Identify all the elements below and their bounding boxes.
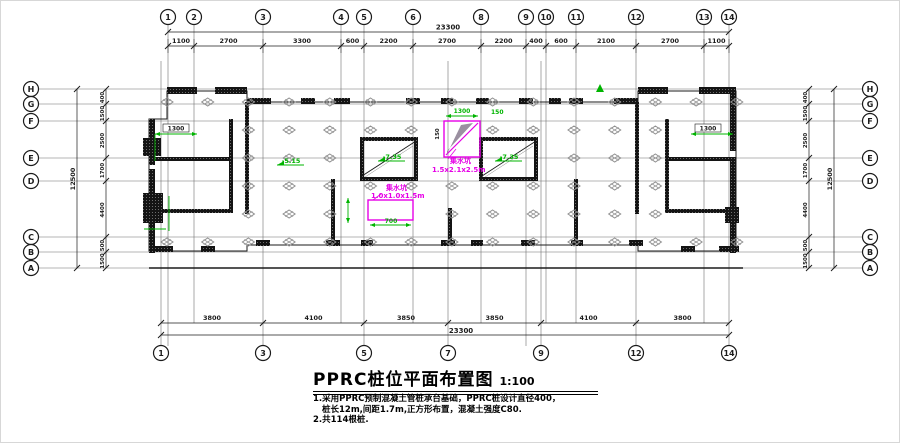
dim-label-right: 1500 [803, 106, 809, 121]
pile-cross [529, 183, 537, 188]
axis-bubble-left-G-label: G [28, 100, 35, 109]
pile-cross [407, 127, 415, 132]
pile-icon [649, 238, 661, 246]
axis-bubble-top-11-label: 11 [570, 13, 582, 22]
wall-segment [665, 119, 669, 213]
drawing-title: PPRC桩位平面布置图 [313, 370, 494, 390]
axis-bubble-right-C-label: C [867, 233, 873, 242]
pile-icon [283, 126, 295, 134]
note-line: 1.采用PPRC预制混凝土管桩承台基础，PPRC桩设计直径400， [313, 394, 560, 405]
axis-bubble-top-1-label: 1 [165, 13, 171, 22]
pile-cross [448, 183, 456, 188]
dim-label-right: 1700 [803, 163, 809, 178]
wall-segment [256, 240, 270, 246]
dim-label-left: 4400 [100, 202, 106, 217]
dim-label-top: 2200 [494, 37, 513, 45]
axis-bubble-right-G-label: G [867, 100, 874, 109]
pile-cross [489, 211, 497, 216]
pile-icon [527, 182, 539, 190]
pile-icon [365, 182, 377, 190]
axis-bubble-bottom-5-label: 5 [361, 349, 367, 358]
dim-label-top: 1100 [707, 37, 726, 45]
axis-bubble-top-8-label: 8 [478, 13, 484, 22]
pit-dim-label: 700 [385, 218, 398, 225]
axis-bubble-bottom-3-label: 3 [260, 349, 266, 358]
pile-cross [651, 211, 659, 216]
pile-cross [285, 127, 293, 132]
stair-diagonal [365, 146, 413, 177]
axis-bubble-left-B-label: B [28, 248, 34, 257]
axis-bubble-right-E-label: E [867, 154, 872, 163]
pile-cross [529, 211, 537, 216]
dim-label-bottom: 3800 [203, 314, 222, 322]
dim-label-right: 1500 [803, 253, 809, 268]
elevation-label: -7.35 [383, 153, 402, 161]
axis-bubble-top-4-label: 4 [338, 13, 344, 22]
axis-bubble-left-D-label: D [28, 177, 35, 186]
dim-label-bottom: 4100 [304, 314, 323, 322]
pile-cross [651, 239, 659, 244]
pile-icon [649, 98, 661, 106]
wall-segment [143, 138, 161, 156]
core-dim-label: 1300 [168, 126, 185, 133]
axis-bubble-bottom-7-label: 7 [445, 349, 451, 358]
pile-icon [202, 238, 214, 246]
wall-segment [665, 157, 736, 161]
axis-bubble-bottom-1-label: 1 [158, 349, 164, 358]
pile-icon [405, 182, 417, 190]
pile-icon [527, 210, 539, 218]
dim-label-top: 600 [554, 37, 568, 45]
dim-label-left: 500 [100, 240, 106, 252]
pile-cross [204, 239, 212, 244]
dim-label-top: 2700 [219, 37, 238, 45]
dim-label-top: 1100 [172, 37, 191, 45]
dim-label-bottom: 3800 [673, 314, 692, 322]
dim-label-top: 2200 [379, 37, 398, 45]
wall-segment [215, 87, 247, 94]
pile-icon [487, 126, 499, 134]
pit-dim-label: 150 [435, 128, 441, 140]
sump-pit-size: 1.5x2.1x2.5m [432, 166, 486, 174]
wall-segment [534, 137, 538, 181]
dim-label-left: 400 [100, 92, 106, 104]
sump-pit-outline [368, 200, 413, 220]
dim-label-right: 2500 [803, 133, 809, 148]
sump-pit-label: 集水坑 [385, 183, 407, 192]
wall-segment [681, 246, 695, 252]
pile-icon [283, 210, 295, 218]
axis-bubble-right-H-label: H [867, 85, 874, 94]
wall-segment [151, 246, 173, 252]
pile-icon [487, 210, 499, 218]
wall-segment [360, 177, 418, 181]
axis-bubble-left-C-label: C [28, 233, 34, 242]
pile-cross [651, 127, 659, 132]
wall-segment [479, 137, 538, 141]
dim-label-right: 400 [803, 92, 809, 104]
pile-icon [161, 238, 173, 246]
pile-icon [446, 182, 458, 190]
dim-label-right: 4400 [803, 202, 809, 217]
pile-icon [690, 238, 702, 246]
axis-bubble-bottom-14-label: 14 [723, 349, 735, 358]
axis-bubble-top-12-label: 12 [630, 13, 641, 22]
pile-cross [489, 127, 497, 132]
pile-cross [285, 183, 293, 188]
axis-bubble-right-B-label: B [867, 248, 873, 257]
axis-bubble-bottom-12-label: 12 [630, 349, 641, 358]
dim-label-left: 1700 [100, 163, 106, 178]
axis-bubble-top-10-label: 10 [540, 13, 552, 22]
dim-label-top: 2100 [597, 37, 616, 45]
axis-bubble-top-3-label: 3 [260, 13, 266, 22]
wall-segment [360, 137, 418, 141]
pile-icon [609, 210, 621, 218]
wall-segment [638, 87, 668, 94]
cad-drawing-canvas: 1100270033006002200270022004006002100270… [0, 0, 900, 443]
wall-segment [229, 119, 233, 213]
pile-cross [611, 183, 619, 188]
wall-segment [479, 177, 538, 181]
dim-label-left-total: 12500 [69, 167, 77, 190]
axis-bubble-top-6-label: 6 [410, 13, 416, 22]
pile-icon [405, 126, 417, 134]
dim-label-bottom-total: 23300 [449, 327, 473, 335]
dim-label-top: 600 [346, 37, 360, 45]
pile-icon [365, 126, 377, 134]
sump-pit-label: 集水坑 [449, 156, 471, 165]
wall-segment [549, 98, 561, 104]
axis-bubble-left-H-label: H [28, 85, 35, 94]
dim-label-right: 500 [803, 240, 809, 252]
wall-segment [334, 98, 350, 104]
pile-cross [489, 239, 497, 244]
dim-label-bottom: 4100 [579, 314, 598, 322]
pile-cross [489, 183, 497, 188]
pile-cross [367, 183, 375, 188]
wall-segment [153, 157, 231, 161]
pile-cross [163, 239, 171, 244]
pile-cross [611, 211, 619, 216]
axis-bubble-top-5-label: 5 [361, 13, 367, 22]
axis-bubble-bottom-9-label: 9 [538, 349, 544, 358]
dim-label-bottom: 3850 [485, 314, 504, 322]
dim-label-top: 2700 [661, 37, 680, 45]
wall-segment [143, 193, 163, 223]
pile-icon [568, 126, 580, 134]
pile-icon [649, 126, 661, 134]
wall-segment [629, 240, 643, 246]
axis-bubble-right-F-label: F [867, 117, 872, 126]
axis-bubble-top-14-label: 14 [723, 13, 735, 22]
pile-icon [283, 182, 295, 190]
elevation-label: -5.15 [282, 157, 301, 165]
pile-cross [529, 127, 537, 132]
note-line: 2.共114根桩. [313, 415, 560, 426]
pile-cross [611, 127, 619, 132]
pile-icon [649, 182, 661, 190]
wall-segment [725, 207, 739, 223]
dim-label-bottom: 3850 [397, 314, 416, 322]
wall-segment [730, 161, 736, 211]
wall-segment [167, 87, 197, 94]
pile-cross [367, 127, 375, 132]
wall-segment [360, 137, 364, 181]
pit-dim-label: 1300 [454, 108, 471, 115]
pile-cross [570, 127, 578, 132]
wall-segment [635, 102, 639, 214]
drawing-notes: 1.采用PPRC预制混凝土管桩承台基础，PPRC桩设计直径400， 桩长12m,… [313, 394, 560, 426]
wall-segment [201, 246, 215, 252]
pile-icon [690, 98, 702, 106]
pile-icon [649, 210, 661, 218]
pile-icon [202, 98, 214, 106]
core-dim-label: 1300 [700, 126, 717, 133]
pit-dim-label: 150 [491, 109, 504, 116]
dim-label-top-total: 23300 [436, 24, 460, 32]
wall-segment [719, 246, 739, 252]
note-line: 桩长12m,间距1.7m,正方形布置，混凝土强度C80. [313, 405, 560, 416]
elevation-label: -7.35 [500, 153, 519, 161]
dim-label-top: 2700 [438, 37, 457, 45]
drawing-title-block: PPRC桩位平面布置图1:100 [313, 365, 598, 395]
dim-label-left: 2500 [100, 133, 106, 148]
pile-icon [609, 126, 621, 134]
pile-icon [609, 182, 621, 190]
sump-pit-size: 1.0x1.0x1.5m [371, 192, 425, 200]
pile-icon [487, 182, 499, 190]
pile-cross [407, 183, 415, 188]
axis-bubble-top-13-label: 13 [698, 13, 709, 22]
wall-segment [471, 240, 483, 246]
pile-cross [285, 211, 293, 216]
pile-cross [326, 127, 334, 132]
pile-cross [651, 183, 659, 188]
axis-bubble-right-D-label: D [867, 177, 874, 186]
axis-bubble-left-E-label: E [28, 154, 33, 163]
drawing-scale-label: 1:100 [500, 375, 535, 388]
dim-label-top: 3300 [293, 37, 312, 45]
axis-bubble-left-F-label: F [28, 117, 33, 126]
dim-label-top: 400 [529, 37, 543, 45]
wall-segment [301, 98, 315, 104]
wall-segment [476, 98, 489, 104]
axis-bubble-top-9-label: 9 [523, 13, 529, 22]
axis-bubble-right-A-label: A [867, 264, 874, 273]
dim-label-left: 1500 [100, 106, 106, 121]
pile-cross [244, 239, 252, 244]
pile-cross [407, 239, 415, 244]
dim-label-right-total: 12500 [826, 167, 834, 190]
pile-cross [692, 239, 700, 244]
wall-segment [614, 98, 638, 104]
axis-bubble-left-A-label: A [28, 264, 35, 273]
dim-label-left: 1500 [100, 253, 106, 268]
pile-cross [611, 239, 619, 244]
axis-bubble-top-2-label: 2 [191, 13, 197, 22]
pile-icon [527, 126, 539, 134]
pile-icon [324, 126, 336, 134]
elevation-flag [596, 84, 604, 92]
wall-segment [153, 209, 231, 213]
wall-segment [414, 137, 418, 181]
pile-cross [285, 239, 293, 244]
